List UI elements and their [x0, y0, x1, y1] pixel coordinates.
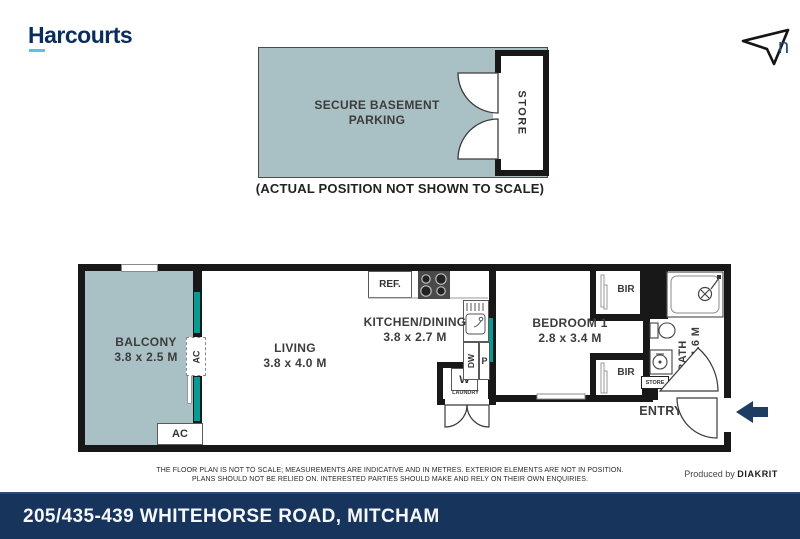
laundry-label: LAUNDRY [438, 390, 493, 396]
parking-store-unit: STORE [495, 50, 549, 176]
bir-bottom-label: BIR [608, 367, 644, 378]
living-dims: 3.8 x 4.0 M [245, 356, 345, 371]
cooktop-icon [418, 271, 450, 299]
living-name: LIVING [245, 341, 345, 356]
entry-label: ENTRY [630, 404, 692, 419]
producer-name: DIAKRIT [737, 469, 778, 479]
bath-label: BATH 2.6 x 1.6 M [660, 321, 720, 391]
balcony-window-opening [121, 264, 158, 272]
floorplan-page: Harcourts n SECURE BASEMENT PARKING STOR… [0, 0, 800, 539]
address-text: 205/435-439 WHITEHORSE ROAD, MITCHAM [23, 506, 440, 528]
store-wall-stub [642, 388, 658, 400]
kitchen-label: KITCHEN/DINING 3.8 x 2.7 M [355, 315, 475, 345]
bedroom-dims: 2.8 x 3.4 M [515, 331, 625, 346]
balcony-name: BALCONY [101, 335, 191, 350]
bedroom-label: BEDROOM 1 2.8 x 3.4 M [515, 316, 625, 346]
refrigerator: REF. [368, 271, 412, 298]
north-label: n [778, 36, 789, 58]
ac-wall-unit-label: AC [191, 350, 201, 363]
dishwasher-label: DW [466, 354, 476, 368]
entry-arrow-icon [730, 395, 775, 430]
dishwasher: DW [463, 342, 479, 380]
bedroom-name: BEDROOM 1 [515, 316, 625, 331]
ac-unit-label: AC [172, 428, 188, 440]
balcony-label: BALCONY 3.8 x 2.5 M [101, 335, 191, 365]
logo-text: Harcourts [28, 22, 132, 49]
harcourts-logo: Harcourts [28, 22, 132, 49]
bir-top-wall [590, 271, 596, 315]
parking-label: SECURE BASEMENT PARKING [312, 98, 442, 128]
bath-name: BATH [677, 327, 690, 385]
bath-dims: 2.6 x 1.6 M [690, 327, 703, 385]
living-label: LIVING 3.8 x 4.0 M [245, 341, 345, 371]
kitchen-dims: 3.8 x 2.7 M [355, 330, 475, 345]
address-bar: 205/435-439 WHITEHORSE ROAD, MITCHAM [0, 492, 800, 539]
balcony-window-glass [194, 377, 200, 421]
kitchen-name: KITCHEN/DINING [355, 315, 475, 330]
balcony-window-glass [194, 292, 200, 333]
parking-store-label: STORE [516, 90, 528, 135]
bir-bottom-wall [590, 353, 596, 402]
basement-parking-area: SECURE BASEMENT PARKING STORE [258, 47, 548, 178]
ac-unit: AC [157, 423, 203, 445]
bath-wall-block [640, 271, 668, 319]
produced-by: Produced by DIAKRIT [578, 469, 778, 479]
bir-top-label: BIR [608, 284, 644, 295]
laundry-doors-icon [445, 405, 489, 427]
bir-bottom-wall [590, 353, 643, 360]
north-arrow-icon: n [735, 20, 800, 75]
logo-underline [29, 49, 45, 52]
balcony-dims: 3.8 x 2.5 M [101, 350, 191, 365]
bedroom-bottom-wall [489, 395, 653, 402]
laundry-opening [445, 399, 489, 405]
pantry-label: P [481, 356, 487, 366]
shower-icon [667, 272, 723, 317]
refrigerator-label: REF. [379, 279, 401, 290]
parking-caption: (ACTUAL POSITION NOT SHOWN TO SCALE) [100, 181, 700, 196]
produced-by-text: Produced by [684, 469, 735, 479]
pantry: P [479, 342, 490, 380]
apartment-floorplan: AC BIR BIR STORE W LAUNDRY [78, 264, 731, 452]
